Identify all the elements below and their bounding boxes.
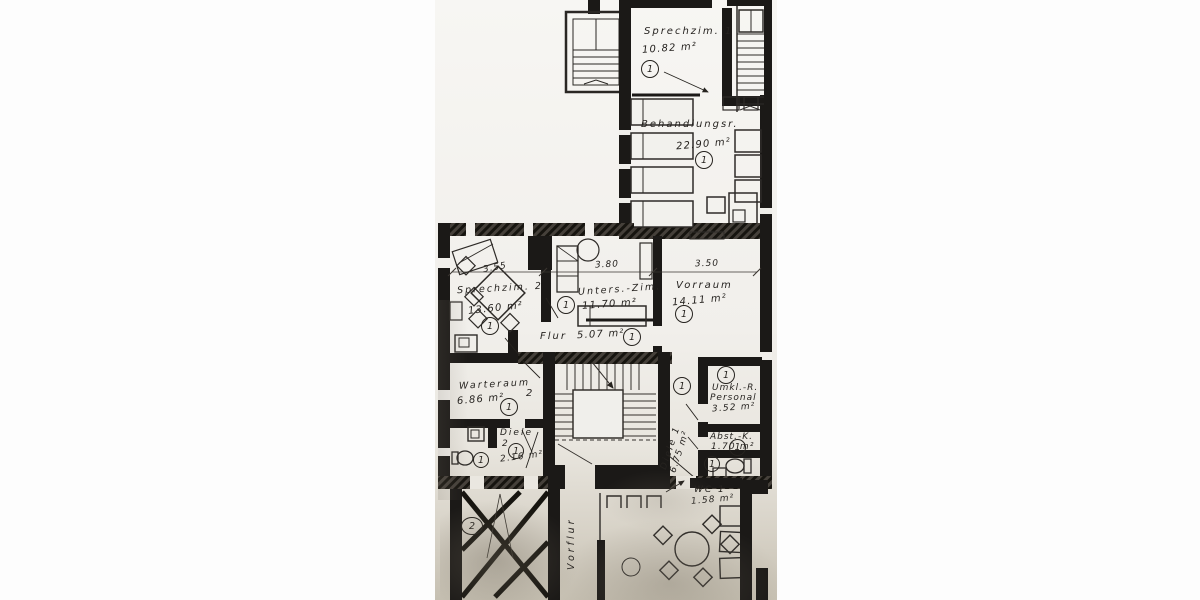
cabinet-icon [640, 243, 652, 279]
bottom-room [597, 478, 768, 600]
unit-mark: 1 [704, 456, 720, 472]
room-label-sprechzim1: Sprechzim. 1 [644, 26, 733, 37]
unit-mark: 1 [481, 317, 499, 335]
vorflur-walls [597, 493, 605, 600]
unit-mark: 1 [695, 151, 713, 169]
toilet-icon [744, 459, 751, 473]
unit-mark: 1 [508, 443, 524, 459]
sink-icon [468, 427, 484, 441]
unit-mark: 1 [641, 60, 659, 78]
crossed-room [450, 489, 560, 600]
chairs-row [607, 496, 661, 508]
unit-mark: 1 [675, 305, 693, 323]
room-label-flur: Flur [540, 331, 567, 342]
dimension-vorraum: 3.50 [695, 259, 719, 271]
floorplan-scan: Sprechzim. 1 10.82 m² 1 Behandlungsr. 22… [0, 0, 1200, 600]
room-label-vorflur: Vorflur [566, 517, 577, 570]
dimension-unterszim: 3.80 [595, 259, 620, 271]
room-label-diele2: Diele [500, 428, 533, 439]
unit-mark: 1 [500, 398, 518, 416]
room-label-behandlungsraum: Behandlungsr. [641, 119, 739, 130]
stairwell-stairs [555, 362, 656, 464]
light-shaft [566, 0, 626, 92]
unit-mark: 1 [557, 296, 575, 314]
room-number-warteraum: 2 [526, 388, 534, 399]
unit-mark: 1 [473, 452, 489, 468]
unit-mark: 2 [461, 517, 483, 535]
unit-mark: 1 [717, 366, 735, 384]
room-label-vorraum: Vorraum [676, 280, 733, 291]
radiator-icon [450, 302, 462, 320]
stool-icon [577, 239, 599, 261]
unit-mark: 1 [623, 328, 641, 346]
unit-mark: 1 [729, 439, 746, 456]
behandlungsraum-cabinets [707, 97, 761, 225]
cabinet-icon [557, 246, 578, 292]
unit-mark: 1 [673, 377, 691, 395]
